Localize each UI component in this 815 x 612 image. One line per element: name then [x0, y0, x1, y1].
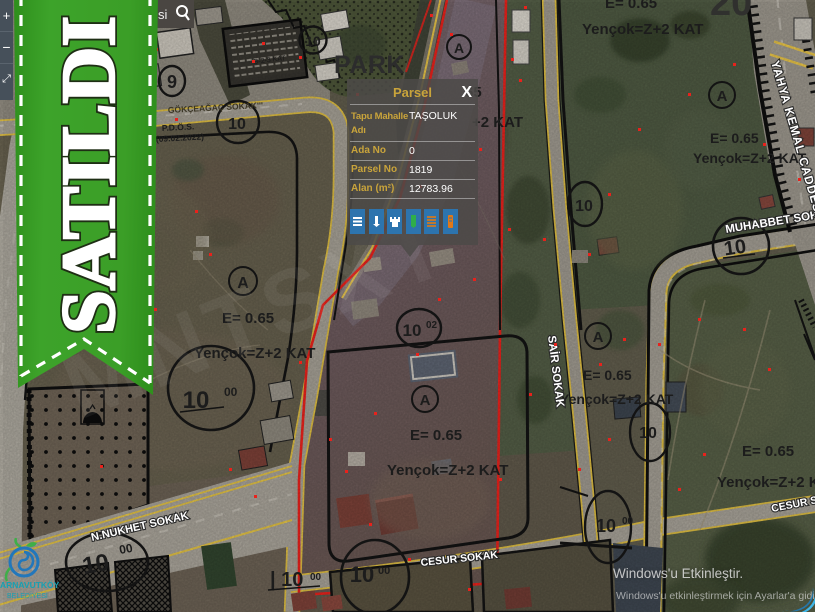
svg-text:E= 0.65: E= 0.65: [710, 130, 759, 146]
svg-text:00: 00: [622, 516, 634, 527]
svg-text:20: 20: [710, 0, 752, 24]
svg-text:SATILDI: SATILDI: [47, 16, 131, 334]
svg-text:E= 0.65: E= 0.65: [742, 443, 794, 460]
svg-text:10: 10: [639, 425, 657, 442]
svg-text:10: 10: [350, 562, 374, 587]
svg-text:Yençok=Z+2 KAT: Yençok=Z+2 KAT: [582, 21, 703, 38]
svg-text:10: 10: [80, 549, 111, 580]
svg-text:E= 0.65: E= 0.65: [410, 427, 462, 444]
svg-text:10: 10: [228, 116, 246, 133]
svg-text:A: A: [454, 40, 464, 56]
svg-text:00: 00: [224, 385, 238, 399]
svg-text:00: 00: [118, 541, 134, 557]
svg-text:A: A: [717, 88, 728, 105]
svg-text:E= 0.65: E= 0.65: [605, 0, 657, 12]
svg-text:10: 10: [596, 516, 616, 536]
svg-text:10: 10: [403, 321, 422, 340]
svg-text:10: 10: [575, 198, 593, 215]
svg-text:02: 02: [426, 320, 438, 331]
svg-text:PARK: PARK: [334, 51, 405, 79]
svg-text:10: 10: [305, 33, 321, 49]
svg-text:BELEDİYESİ: BELEDİYESİ: [7, 591, 48, 600]
svg-text:A: A: [593, 329, 604, 346]
svg-text:Yençok=Z+2 KAT: Yençok=Z+2 KAT: [693, 150, 807, 166]
svg-text:00: 00: [378, 565, 390, 577]
svg-text:00: 00: [310, 572, 322, 583]
svg-text:ARNAVUTKÖY: ARNAVUTKÖY: [0, 580, 60, 590]
svg-text:E= 0.65: E= 0.65: [583, 367, 632, 383]
svg-text:A: A: [420, 392, 431, 409]
svg-text:+2 KAT: +2 KAT: [472, 114, 523, 131]
svg-text:Yençok=Z+2 KAT: Yençok=Z+2 KAT: [560, 391, 674, 407]
svg-text:Yençok=Z+2 KAT: Yençok=Z+2 KAT: [717, 474, 815, 491]
svg-text:Yençok=Z+2 KAT: Yençok=Z+2 KAT: [387, 462, 508, 479]
